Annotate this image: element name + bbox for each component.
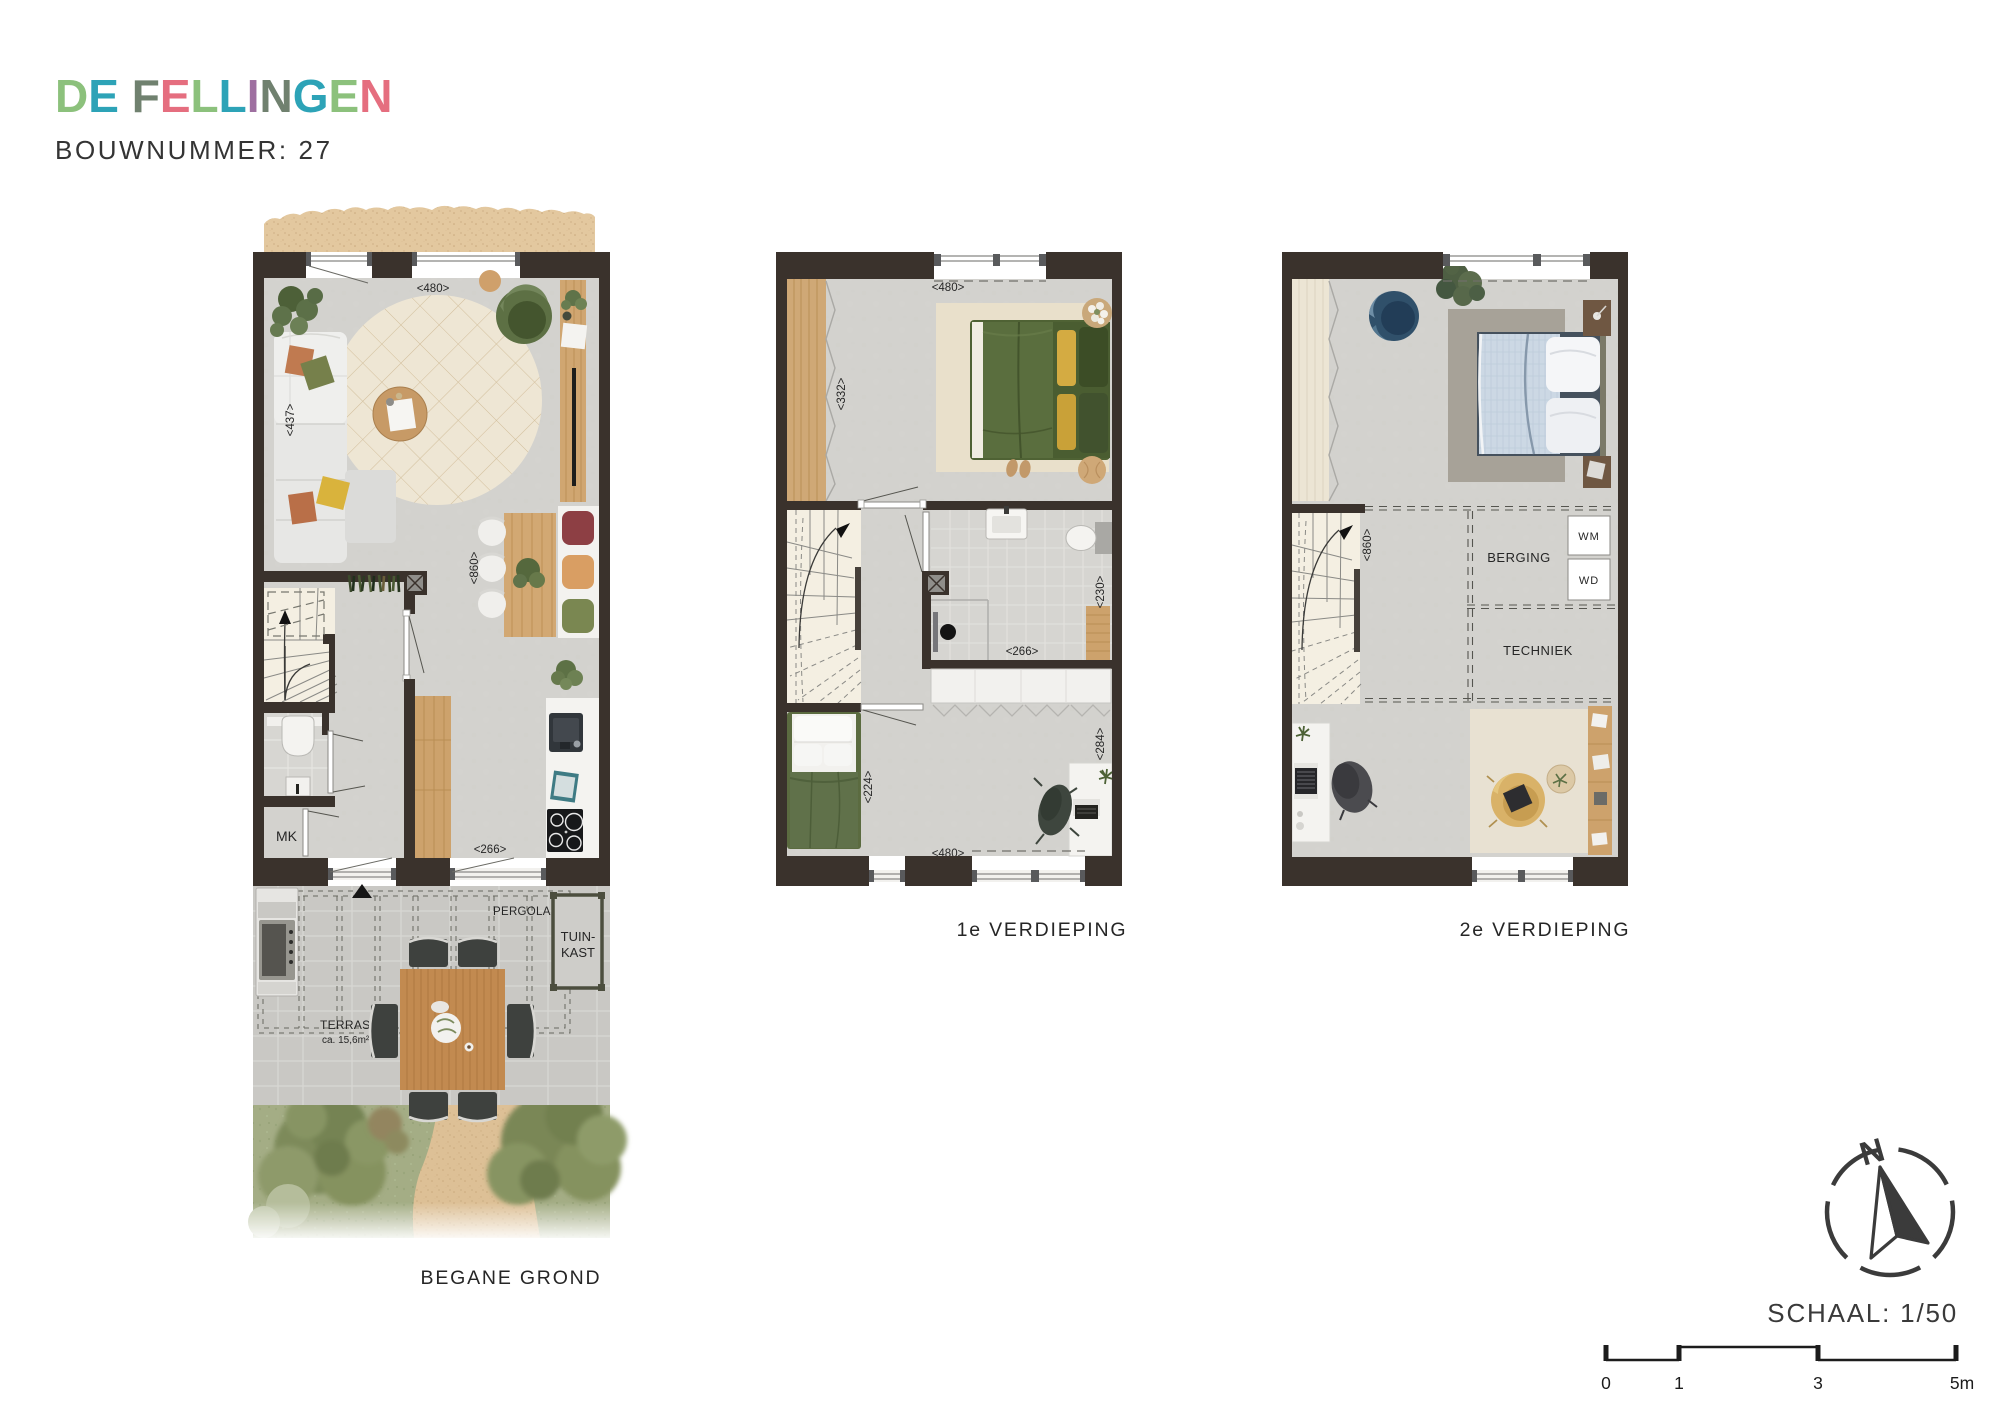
svg-text:3: 3 — [1813, 1373, 1823, 1393]
svg-text:<224>: <224> — [863, 770, 875, 803]
svg-text:KAST: KAST — [561, 945, 595, 960]
svg-text:WD: WD — [1579, 575, 1599, 587]
svg-text:TECHNIEK: TECHNIEK — [1503, 643, 1573, 658]
svg-text:TUIN-: TUIN- — [561, 929, 596, 944]
svg-text:<266>: <266> — [474, 844, 507, 856]
svg-text:<860>: <860> — [469, 551, 481, 584]
svg-text:WM: WM — [1578, 531, 1600, 543]
svg-text:DE FELLINGEN: DE FELLINGEN — [55, 70, 392, 122]
svg-text:BERGING: BERGING — [1487, 550, 1550, 565]
svg-text:BEGANE GROND: BEGANE GROND — [421, 1267, 602, 1289]
svg-text:1e VERDIEPING: 1e VERDIEPING — [957, 919, 1128, 941]
svg-text:PERGOLA: PERGOLA — [493, 906, 551, 918]
svg-text:BOUWNUMMER: 27: BOUWNUMMER: 27 — [55, 135, 333, 165]
svg-text:<480>: <480> — [417, 283, 450, 295]
svg-text:ca. 15,6m²: ca. 15,6m² — [322, 1035, 370, 1046]
svg-text:<480>: <480> — [932, 282, 965, 294]
svg-text:<284>: <284> — [1095, 727, 1107, 760]
svg-text:<266>: <266> — [1006, 646, 1039, 658]
svg-text:1: 1 — [1674, 1373, 1684, 1393]
svg-text:SCHAAL: 1/50: SCHAAL: 1/50 — [1767, 1298, 1958, 1328]
svg-text:<437>: <437> — [285, 403, 297, 436]
svg-text:0: 0 — [1601, 1373, 1611, 1393]
svg-text:MK: MK — [276, 828, 298, 844]
svg-text:5m: 5m — [1950, 1373, 1974, 1393]
svg-text:<332>: <332> — [836, 377, 848, 410]
svg-text:<860>: <860> — [1362, 528, 1374, 561]
svg-text:<230>: <230> — [1095, 575, 1107, 608]
svg-text:TERRAS: TERRAS — [320, 1018, 370, 1032]
svg-text:2e VERDIEPING: 2e VERDIEPING — [1460, 919, 1631, 941]
